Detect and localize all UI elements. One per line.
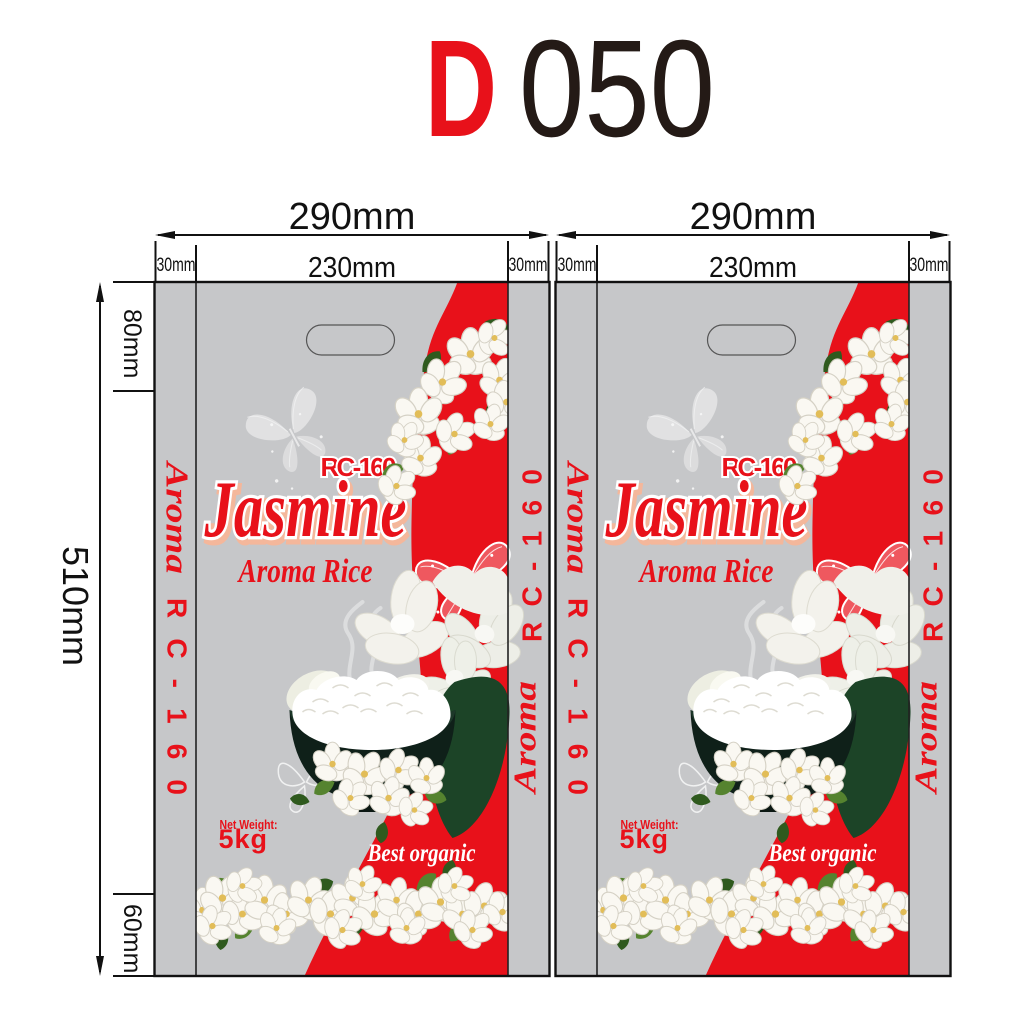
svg-text:290mm: 290mm — [690, 196, 817, 238]
svg-text:30mm: 30mm — [910, 255, 949, 276]
svg-text:30mm: 30mm — [157, 255, 196, 276]
svg-text:510mm: 510mm — [55, 546, 96, 666]
svg-text:60mm: 60mm — [118, 904, 146, 973]
svg-text:050: 050 — [519, 12, 715, 166]
svg-text:D: D — [425, 12, 497, 166]
svg-text:230mm: 230mm — [308, 252, 396, 284]
svg-text:30mm: 30mm — [558, 255, 597, 276]
svg-text:30mm: 30mm — [509, 255, 548, 276]
svg-text:290mm: 290mm — [289, 196, 416, 238]
svg-text:230mm: 230mm — [709, 252, 797, 284]
svg-text:80mm: 80mm — [118, 309, 146, 378]
